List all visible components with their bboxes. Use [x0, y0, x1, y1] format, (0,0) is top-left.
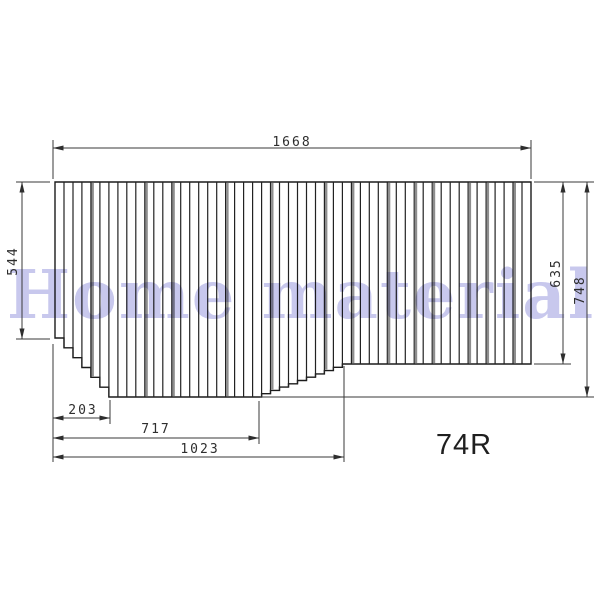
dimension-label-203: 203: [68, 403, 97, 418]
bath-lid-technical-drawing: Home material 1668 544 635 748 203 71: [0, 0, 600, 600]
dimension-label-544: 544: [6, 246, 21, 275]
dimension-label-717: 717: [141, 422, 170, 437]
part-label: 74R: [436, 429, 492, 461]
dimension-label-635: 635: [549, 258, 564, 287]
dimension-label-1668: 1668: [272, 135, 311, 150]
dimension-overall-width: 1668: [53, 135, 531, 179]
dimension-bottom-left-step: 203: [53, 400, 110, 424]
dimension-label-1023: 1023: [180, 442, 219, 457]
watermark-text: Home material: [7, 255, 595, 334]
dimension-label-748: 748: [573, 275, 588, 304]
drawing-canvas: Home material 1668 544 635 748 203 71: [0, 0, 600, 600]
